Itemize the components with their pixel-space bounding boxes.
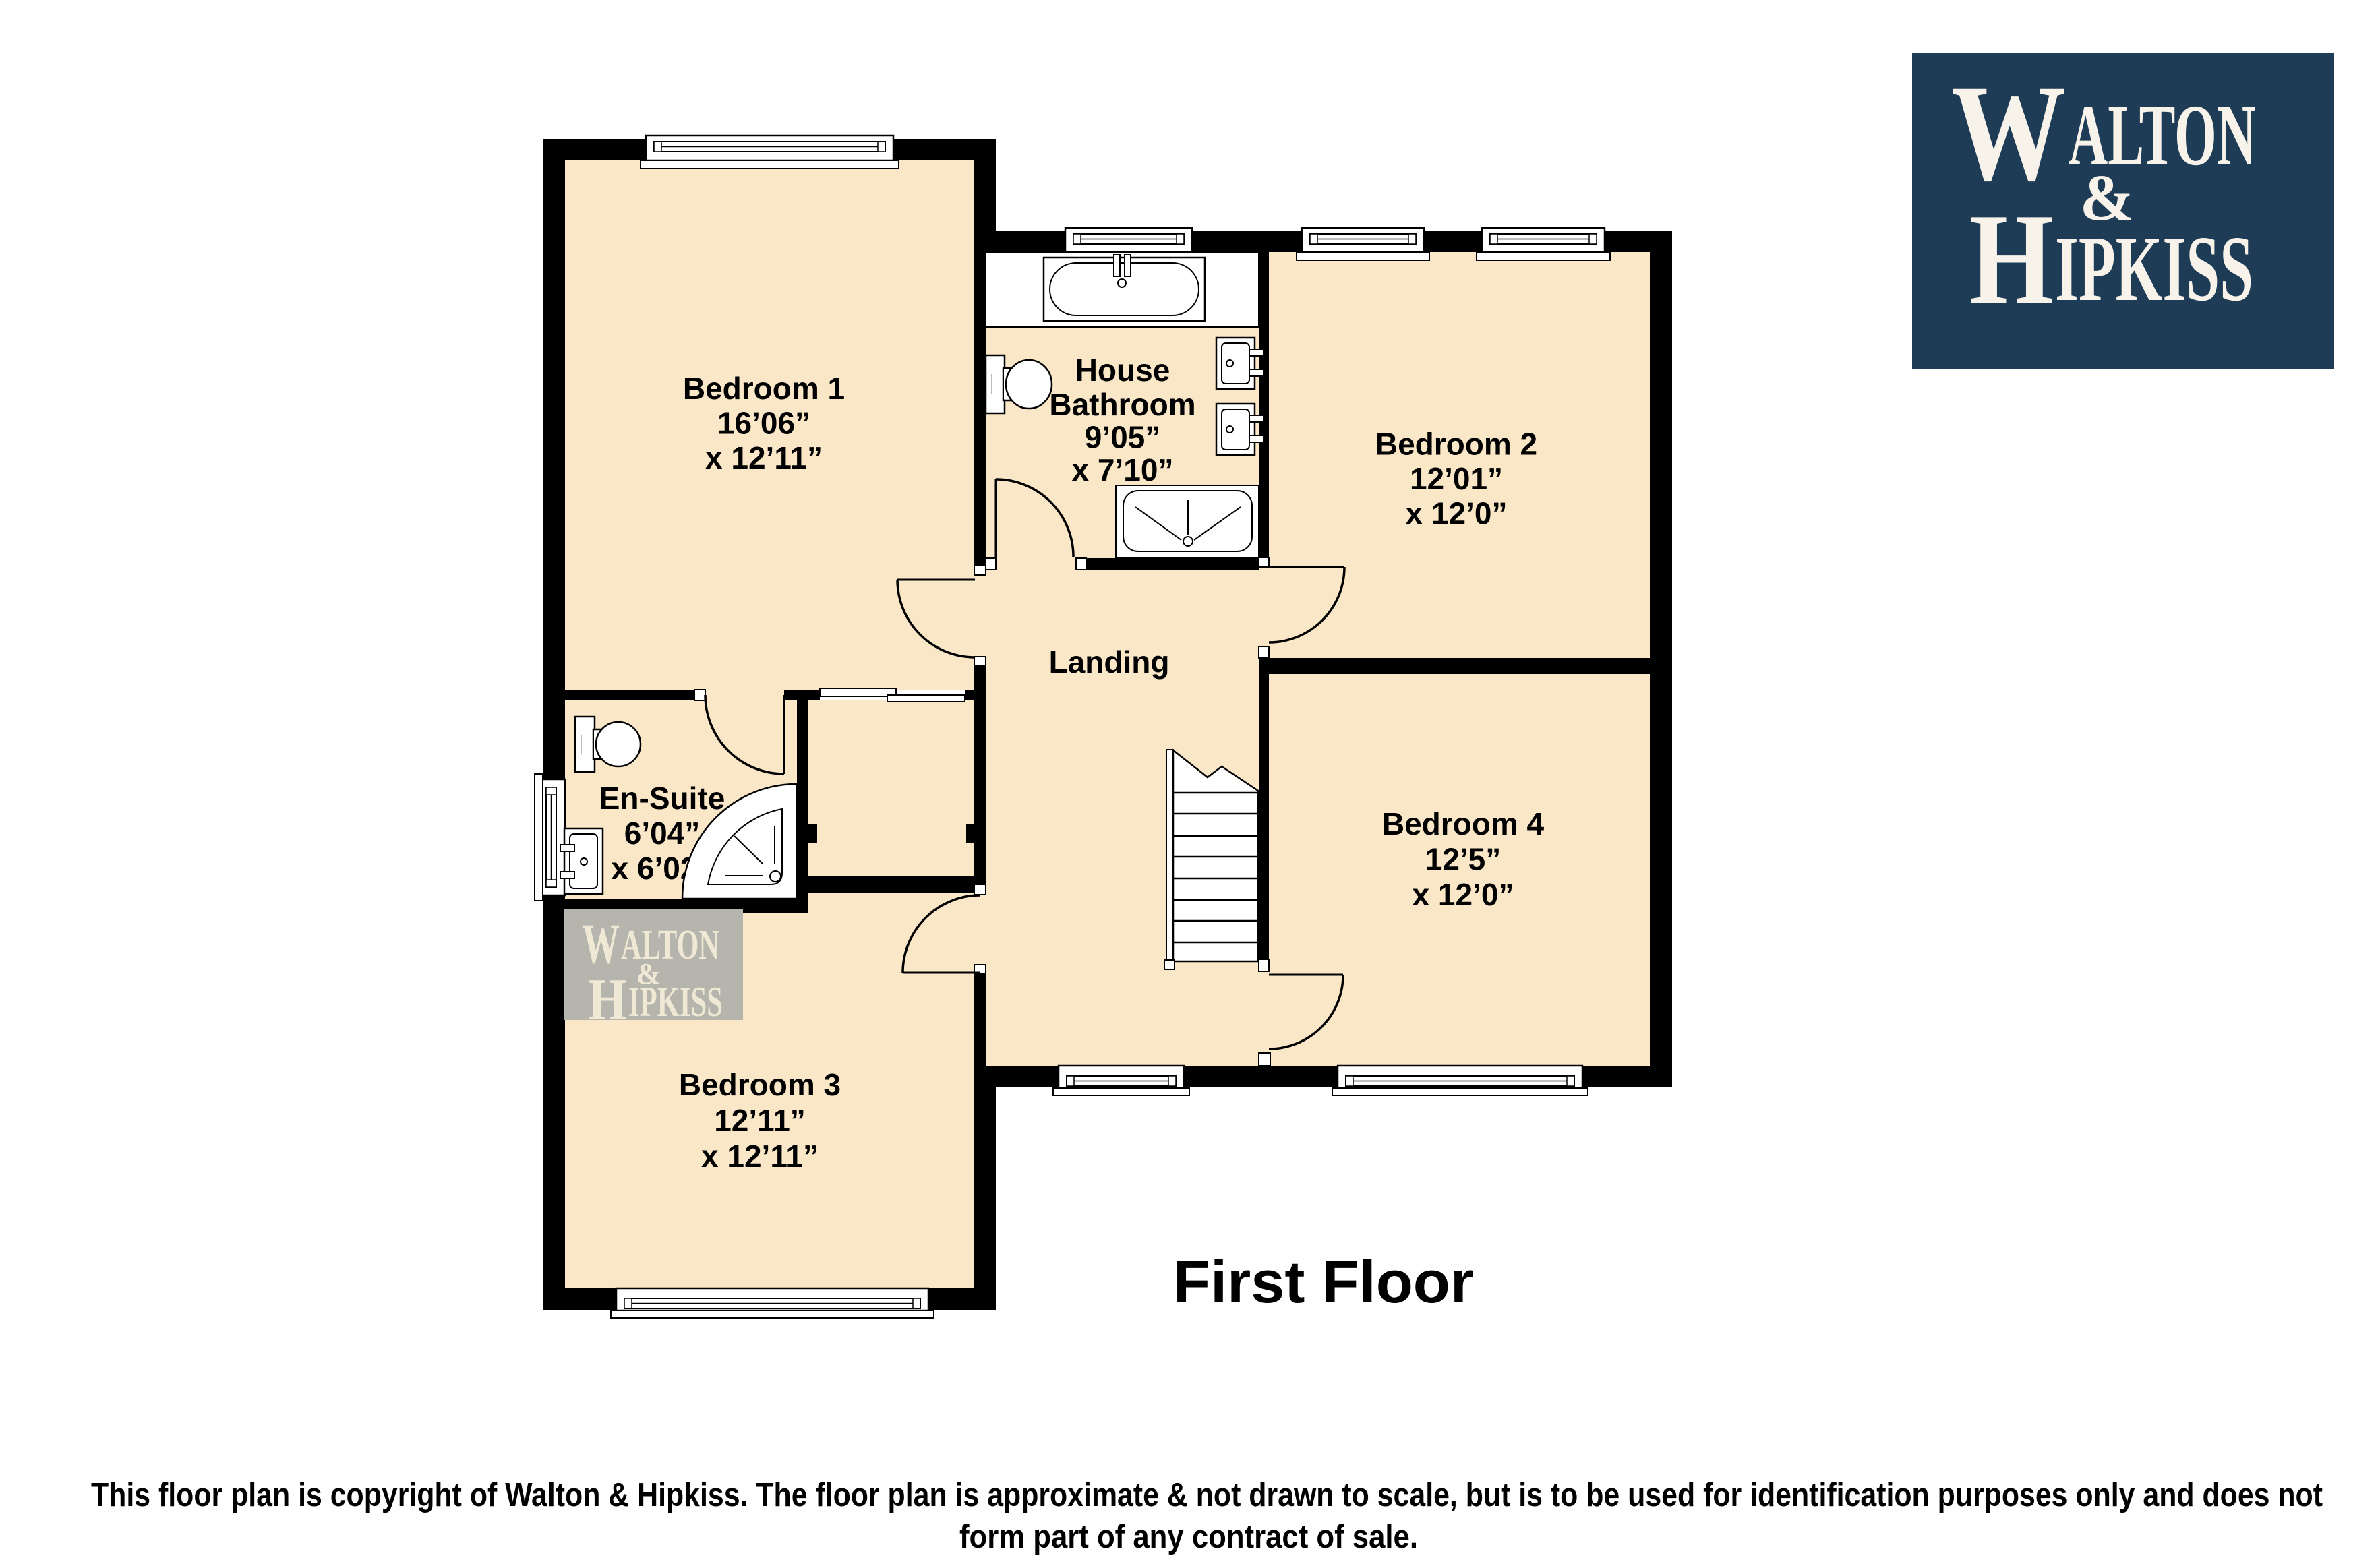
svg-text:H: H (1969, 187, 2054, 332)
svg-text:Landing: Landing (1049, 644, 1170, 680)
svg-text:IPKISS: IPKISS (2055, 217, 2253, 321)
svg-text:First Floor: First Floor (1173, 1248, 1474, 1315)
svg-text:form part of any contract of s: form part of any contract of sale. (959, 1519, 1418, 1555)
svg-text:W: W (582, 912, 620, 975)
svg-text:H: H (588, 967, 627, 1033)
svg-text:IPKISS: IPKISS (628, 977, 723, 1025)
svg-text:This floor plan is copyright o: This floor plan is copyright of Walton &… (91, 1477, 2323, 1513)
